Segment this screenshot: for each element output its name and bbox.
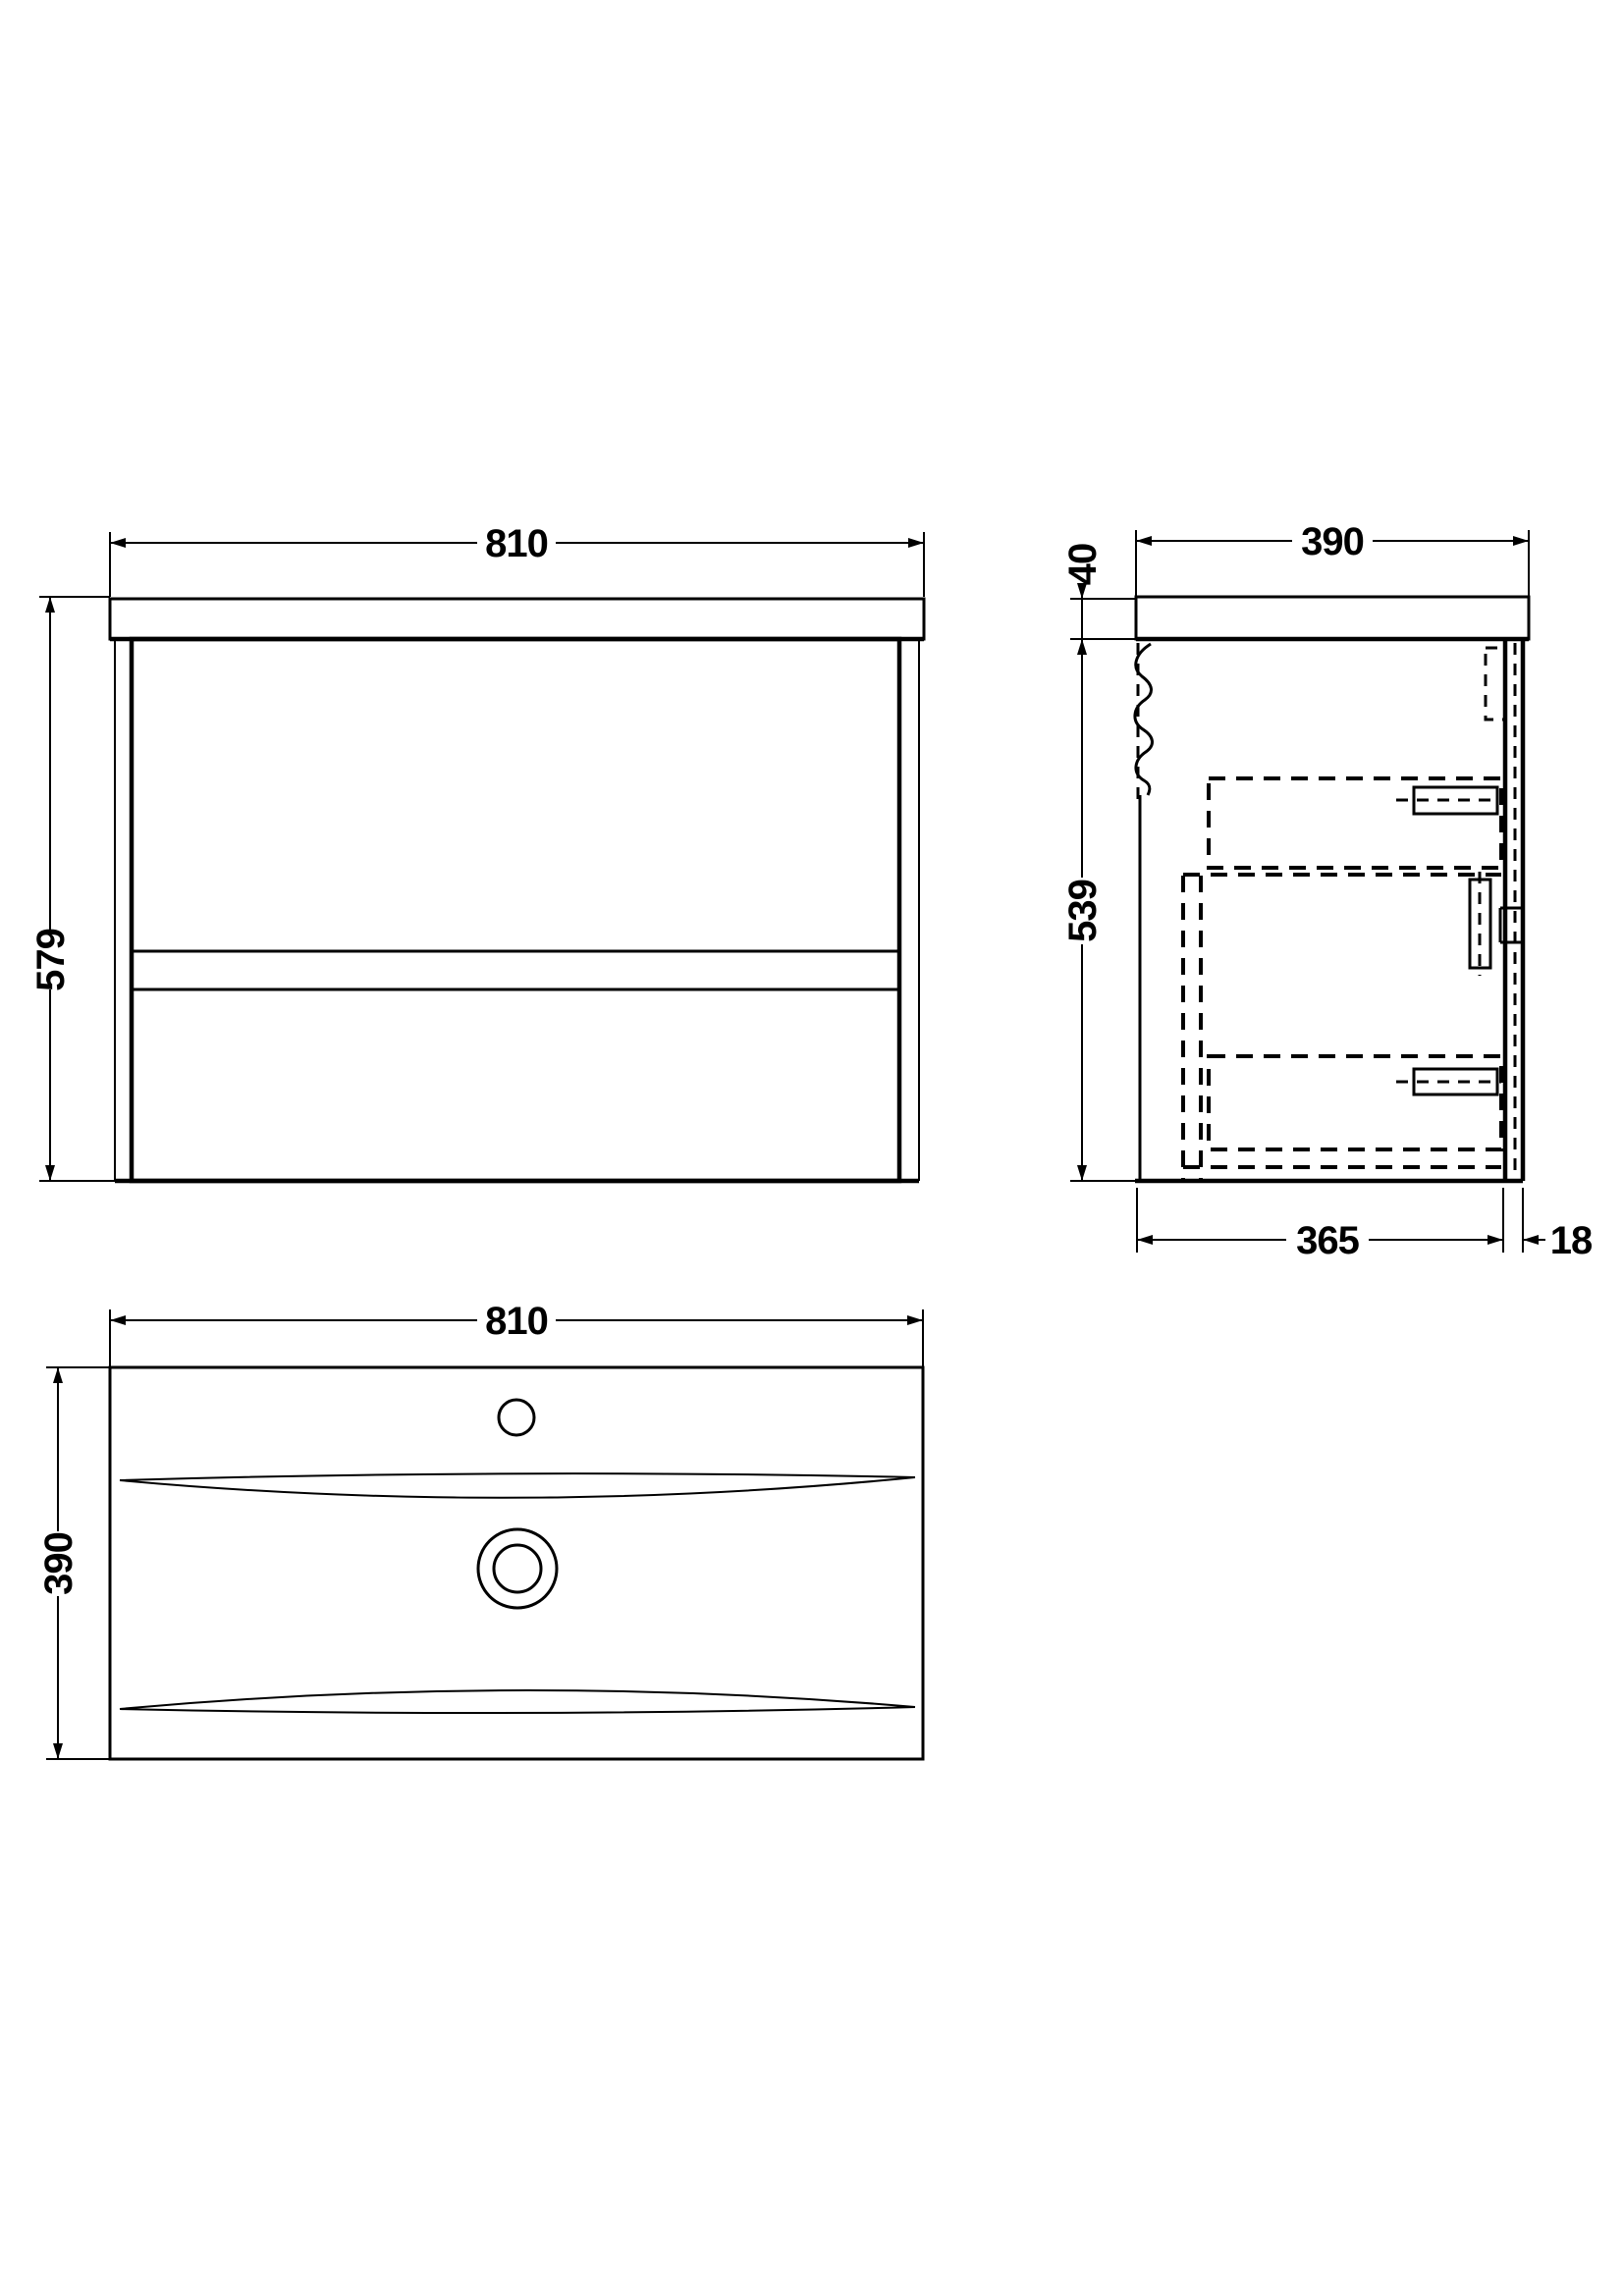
dimension-side-cabinet-height: 539	[1061, 591, 1135, 1181]
basin-tap-hole	[499, 1400, 534, 1435]
basin-lower-curve-bottom	[120, 1707, 915, 1713]
front-drawer-fronts	[132, 639, 899, 1181]
basin-lower-curve-top	[120, 1690, 915, 1709]
front-view	[110, 599, 924, 1181]
side-upper-drawer-box-hidden	[1209, 778, 1501, 868]
side-carcass-depth-label: 365	[1296, 1219, 1359, 1262]
side-hidden-bracket-top	[1486, 648, 1505, 720]
basin-waste-outer	[478, 1529, 557, 1608]
dimension-front-width: 810	[110, 522, 924, 597]
front-height-label: 579	[29, 929, 73, 991]
dimension-basin-depth: 390	[37, 1367, 110, 1759]
front-worktop	[110, 599, 924, 639]
basin-upper-curve-top	[120, 1473, 915, 1480]
basin-width-label: 810	[485, 1300, 548, 1343]
dimension-side-depth: 390	[1136, 520, 1529, 597]
side-worktop-thickness-label: 40	[1061, 544, 1105, 586]
dimension-annotations: 810 579 390 40	[29, 520, 1593, 1759]
technical-drawing: 810 579 390 40	[0, 0, 1623, 2296]
dimension-basin-width: 810	[110, 1300, 923, 1367]
dimension-side-worktop-thickness: 40	[1061, 544, 1136, 655]
side-worktop	[1136, 597, 1529, 639]
dimension-front-height: 579	[29, 597, 115, 1181]
basin-upper-curve-bottom	[120, 1477, 915, 1498]
side-view	[1135, 597, 1529, 1181]
dimension-side-front-panel: 18	[1523, 1219, 1593, 1262]
basin-plan-view	[110, 1367, 923, 1759]
dimension-side-carcass-depth: 365	[1137, 1188, 1523, 1262]
basin-depth-label: 390	[37, 1532, 81, 1595]
side-front-panel-label: 18	[1550, 1219, 1593, 1262]
side-cabinet-height-label: 539	[1061, 880, 1105, 942]
front-width-label: 810	[485, 522, 548, 565]
side-depth-label: 390	[1301, 520, 1364, 563]
basin-waste-inner	[494, 1545, 541, 1592]
